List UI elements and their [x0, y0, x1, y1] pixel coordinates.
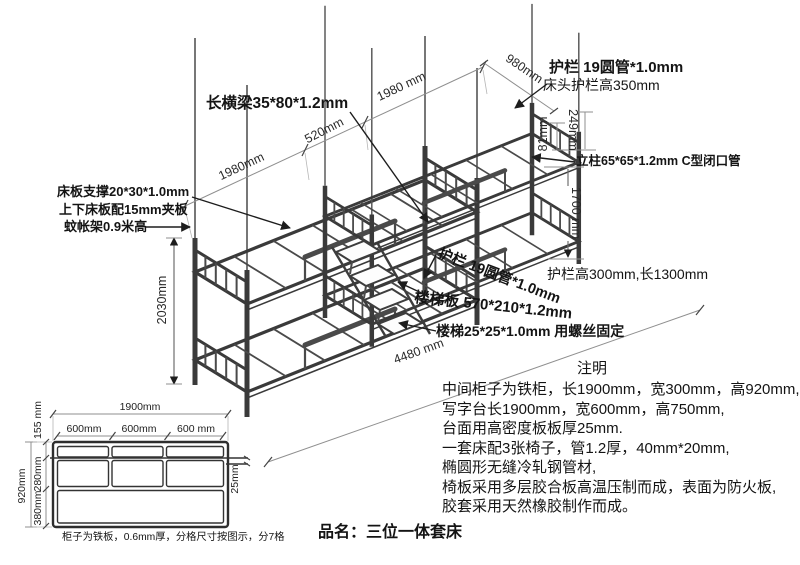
product-name: 品名：三位一体套床: [318, 524, 462, 542]
cab-dim-bottom-row: 380mm: [32, 490, 44, 525]
cab-dim-cell3: 600 mm: [177, 423, 215, 435]
note-line: 椭圆形无缝冷轧钢管材,: [442, 458, 800, 478]
cab-dim-top-row: 155 mm: [32, 401, 44, 439]
slat-support-label: 床板支撑20*30*1.0mm: [57, 185, 189, 200]
cab-dim-desk-thickness: 25mm: [229, 464, 241, 493]
cab-dim-total-height: 920mm: [16, 468, 28, 503]
dim-right-length: 1980 mm: [375, 69, 428, 104]
note-line: 一套床配3张椅子，管1.2厚，40mm*20mm,: [442, 439, 800, 459]
long-beam-label: 长横梁35*80*1.2mm: [206, 95, 348, 113]
technical-drawing-page: 1980mm 520mm 1980 mm 980mm 249mm 81mm 17…: [0, 0, 800, 565]
dim-total-height: 2030mm: [155, 276, 169, 325]
dim-rail-drop: 249mm: [566, 109, 580, 151]
note-line: 台面用高密度板板厚25mm.: [442, 419, 800, 439]
net-frame-label: 蚊帐架0.9米高: [64, 220, 147, 235]
cab-dim-cell2: 600mm: [121, 423, 156, 435]
cab-dim-total-width: 1900mm: [120, 401, 161, 413]
note-line: 中间柜子为铁柜，长1900mm，宽300mm，高920mm,: [442, 380, 800, 400]
cab-dim-mid-row: 280mm: [32, 456, 44, 491]
cabinet-caption: 柜子为铁板，0.6mm厚，分格尺寸按图示，分7格: [62, 532, 285, 544]
dim-left-length: 1980mm: [216, 150, 266, 183]
dim-total-length: 4480 mm: [392, 336, 446, 367]
pillar-label: 立柱65*65*1.2mm C型闭口管: [576, 154, 741, 168]
side-guardrail-label: 护栏高300mm,长1300mm: [547, 266, 708, 282]
cabinet-detail-drawing: 1900mm 600mm 600mm 600 mm 155 mm 920mm 2…: [16, 401, 250, 529]
left-bunk-bed: [195, 36, 477, 417]
cab-dim-cell1: 600mm: [66, 423, 101, 435]
note-line: 胶套采用天然橡胶制作而成。: [442, 497, 800, 517]
note-line: 写字台长1900mm，宽600mm，高750mm,: [442, 400, 800, 420]
notes-heading: 注明: [577, 360, 607, 377]
notes-block: 中间柜子为铁柜，长1900mm，宽300mm，高920mm, 写字台长1900m…: [442, 380, 800, 517]
dim-pillar-height: 1700 mm: [569, 187, 583, 239]
head-guardrail-label: 护栏 19圆管*1.0mm: [549, 59, 683, 76]
note-line: 椅板采用多层胶合板高温压制而成，表面为防火板,: [442, 478, 800, 498]
head-guardrail-height-label: 床头护栏高350mm: [543, 77, 660, 93]
stair-tube-label: 楼梯25*25*1.0mm 用螺丝固定: [436, 323, 624, 339]
slat-board-label: 上下床板配15mm夹板: [59, 203, 188, 218]
dim-rail-gap: 81mm: [536, 117, 550, 152]
